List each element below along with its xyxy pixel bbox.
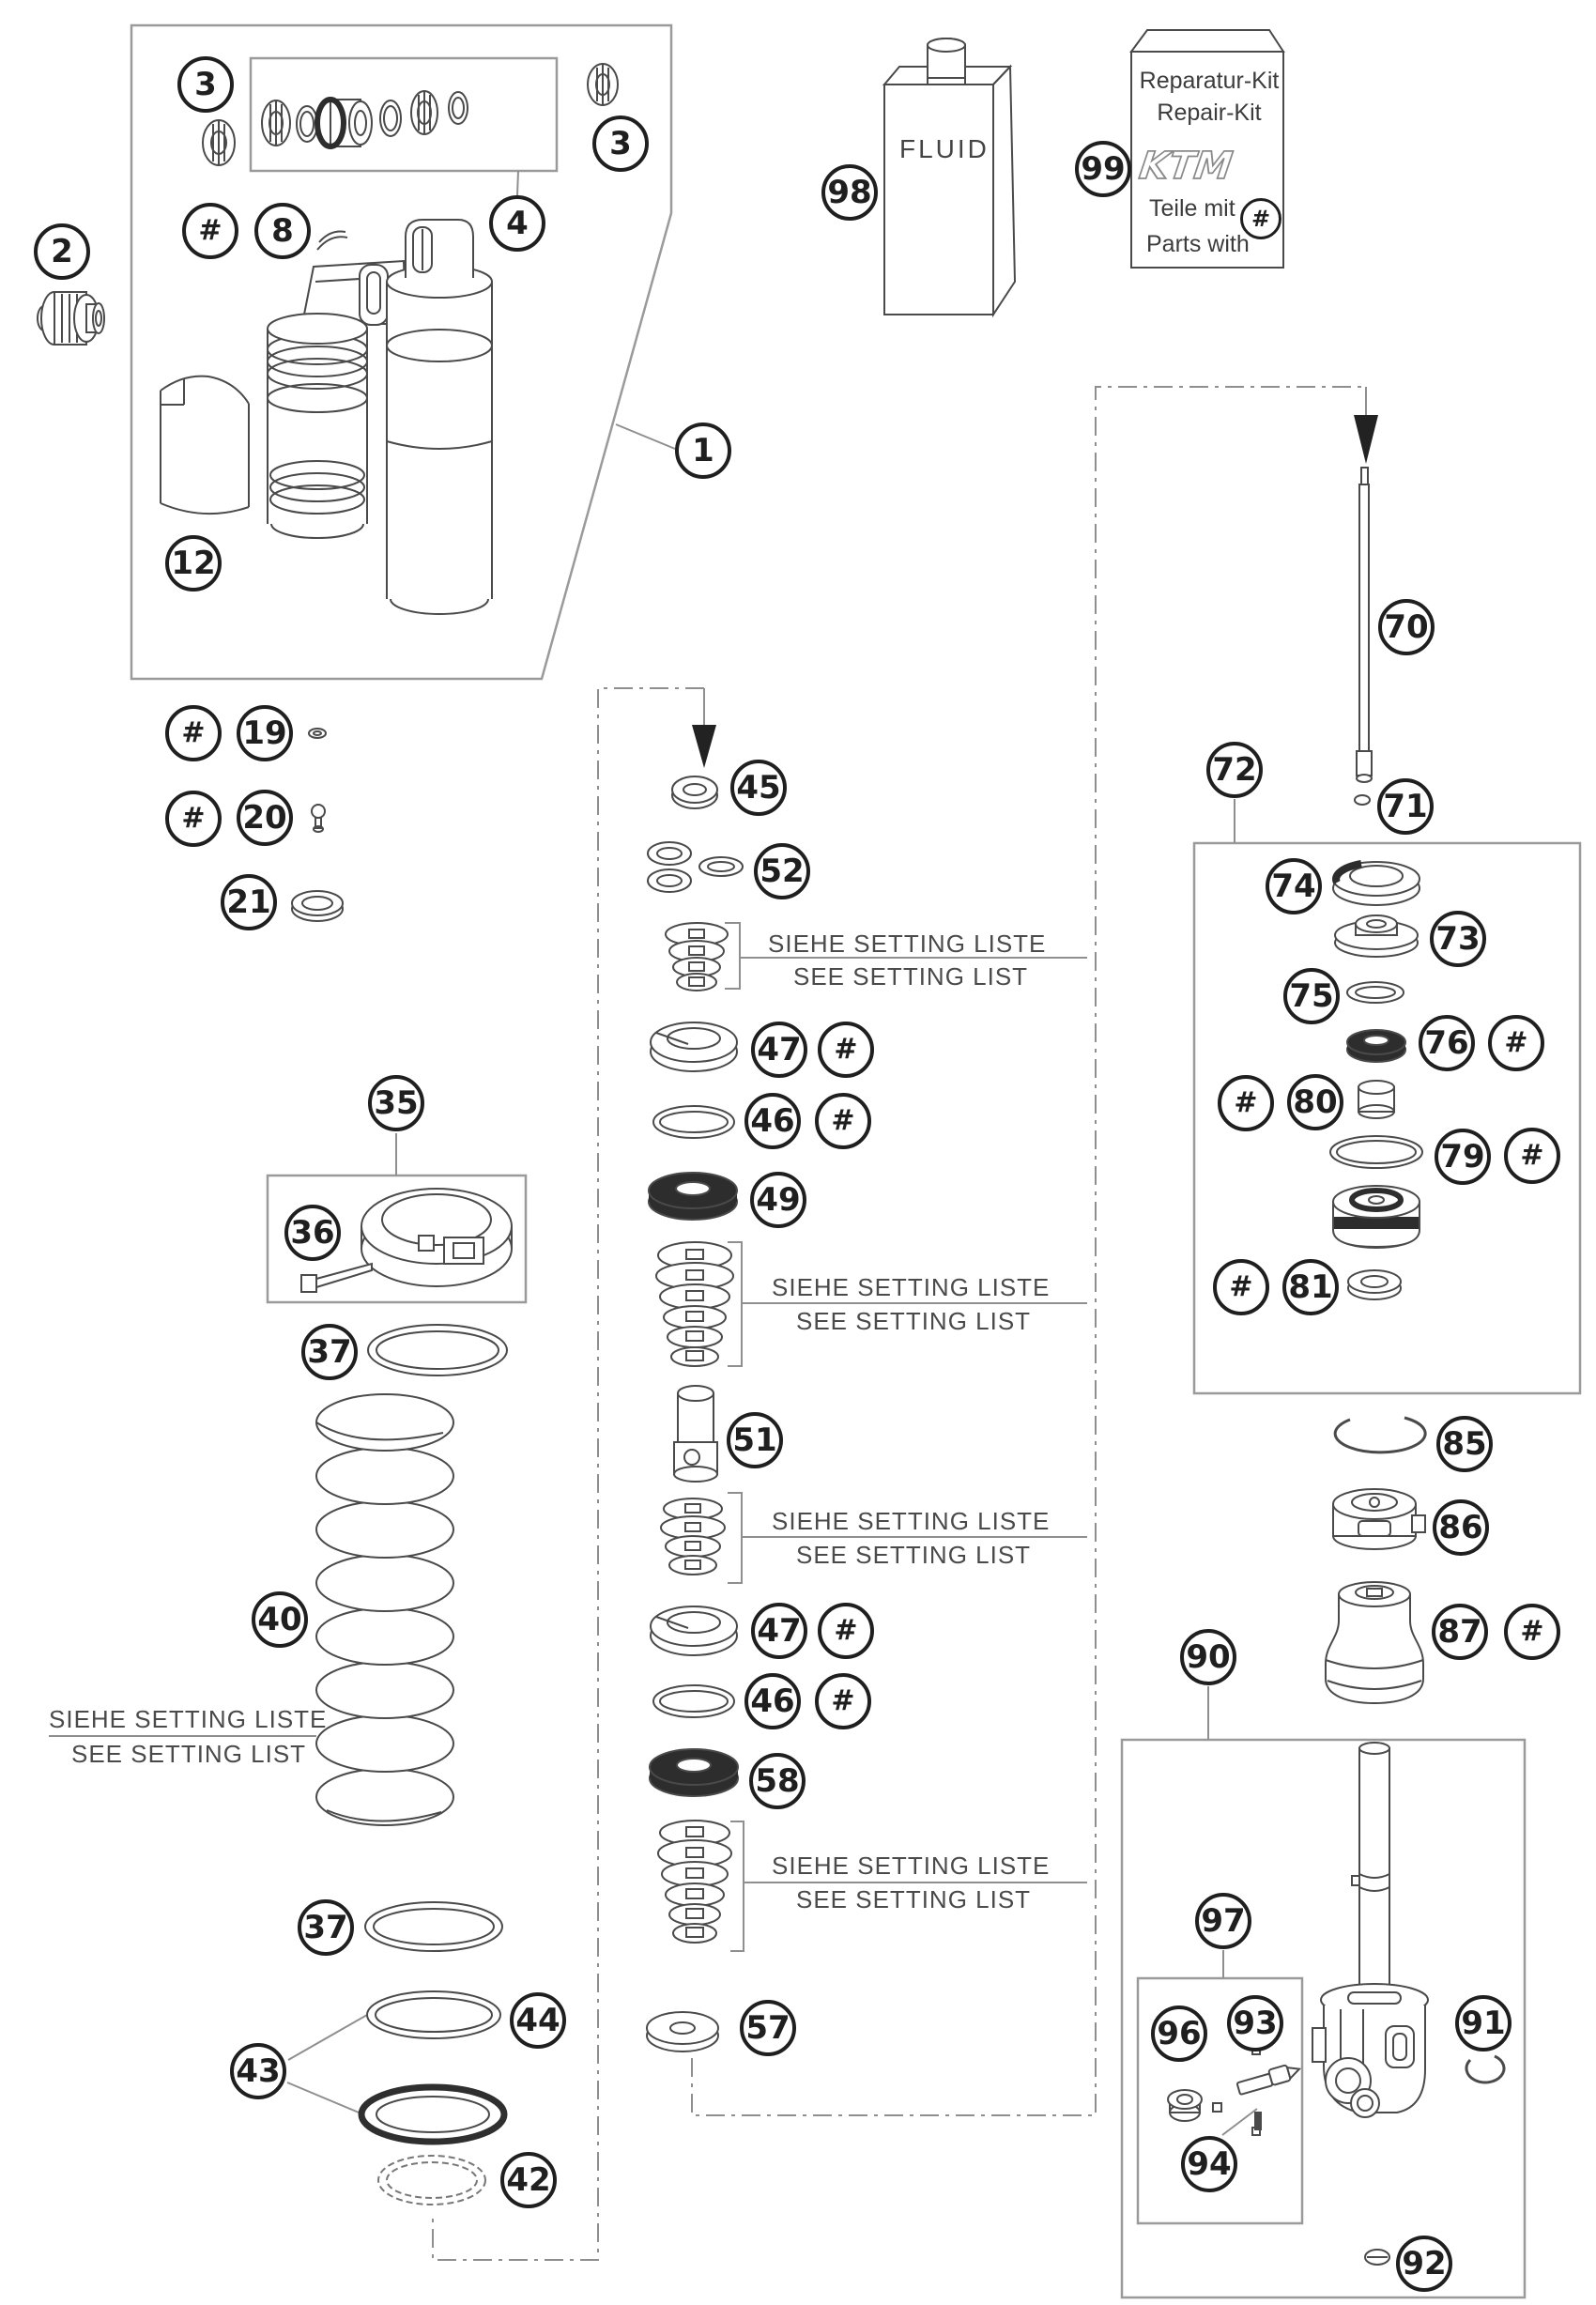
callout-37: 37 [298,1899,354,1956]
part-79-oring [1330,1136,1422,1168]
callout-57: 57 [740,2000,796,2056]
setting-note-0-line1: SIEHE SETTING LISTE [768,930,1046,959]
callout-86: 86 [1433,1499,1489,1556]
setting-note-1-line2: SEE SETTING LIST [796,1307,1031,1336]
callout-4: 4 [489,195,545,252]
part-81-washer [1348,1270,1401,1299]
flow-arrows [692,387,1378,768]
part-3-bushing-right [588,64,618,105]
part-80-bushing [1358,1081,1394,1118]
part-91-ring [1466,2056,1504,2082]
callout-hash: # [818,1603,874,1659]
callout-92: 92 [1396,2236,1452,2292]
callout-47: 47 [751,1022,807,1078]
setting-note-3-line2: SEE SETTING LIST [796,1885,1031,1914]
shim-stack-3 [661,1498,725,1575]
setting-note-3-line1: SIEHE SETTING LISTE [772,1852,1050,1881]
callout-80: 80 [1287,1074,1343,1130]
callout-79: 79 [1435,1129,1491,1185]
callout-36: 36 [284,1205,341,1261]
part-3-bushing-left [203,120,235,165]
part-45-locknut [672,776,717,808]
part-44-ring [367,1991,500,2038]
setting-note-2-line1: SIEHE SETTING LISTE [772,1507,1050,1536]
part-52-washers [648,842,743,892]
setting-note-4-line1: SIEHE SETTING LISTE [49,1705,327,1734]
part-58-piston [650,1749,738,1796]
callout-43: 43 [230,2043,286,2099]
callout-46: 46 [744,1093,801,1149]
callout-98: 98 [821,164,878,221]
repair-kit-title-de: Reparatur-Kit [1134,68,1284,95]
part-2-adjuster [38,292,104,345]
callout-hash: # [165,791,222,847]
callout-hash: # [818,1022,874,1078]
callout-hash: # [1504,1128,1560,1184]
part-46-ring-top [653,1106,734,1138]
part-57-washer [647,2012,718,2051]
down-arrow-icon [1354,415,1378,464]
callout-90: 90 [1180,1629,1236,1685]
callout-hash: # [1504,1604,1560,1660]
callout-35: 35 [368,1075,424,1131]
repair-kit-title-en: Repair-Kit [1134,100,1284,127]
callout-hash: # [1240,198,1281,239]
callout-58: 58 [749,1753,806,1809]
callout-46: 46 [744,1673,801,1729]
callout-hash: # [165,705,222,761]
fluid-bottle-label: FLUID [899,134,990,164]
setting-note-1-line1: SIEHE SETTING LISTE [772,1273,1050,1302]
callout-85: 85 [1436,1416,1493,1472]
callout-74: 74 [1266,858,1322,914]
callout-1: 1 [675,423,731,479]
part-37-ring-bottom [365,1902,502,1951]
part-43-seal-ring [361,2087,504,2142]
part-8-spring-clip [317,231,347,250]
callout-37: 37 [301,1324,358,1380]
callout-71: 71 [1377,778,1434,835]
repair-kit-note-en: Parts with [1146,231,1250,258]
part-seal-head-72 [1333,1186,1420,1248]
callout-94: 94 [1181,2136,1237,2192]
part-51-spacer [674,1386,717,1482]
part-42-oring [378,2156,485,2205]
part-12-heat-shield [161,376,249,515]
part-49-piston [649,1173,737,1220]
callout-hash: # [1488,1015,1544,1071]
callout-97: 97 [1195,1893,1251,1949]
callout-91: 91 [1455,1995,1512,2051]
fluid-bottle [884,38,1015,315]
kit-90-shaft-clevis [1312,1743,1428,2117]
shock-absorber-assembly [268,220,492,614]
repair-kit-note-de: Teile mit [1149,195,1235,223]
setting-note-2-line2: SEE SETTING LIST [796,1541,1031,1570]
part-71-stop [1355,795,1370,805]
callout-3: 3 [177,56,234,113]
callout-hash: # [1218,1075,1274,1131]
callout-49: 49 [750,1172,806,1228]
part-37-ring-top [368,1325,507,1375]
callout-87: 87 [1432,1604,1488,1660]
callout-93: 93 [1227,1995,1283,2051]
callout-hash: # [815,1093,871,1149]
callout-47: 47 [751,1603,807,1659]
part-86-seal-head [1333,1489,1425,1549]
down-arrow-icon [692,725,716,768]
box-kit-4 [251,58,557,171]
ktm-logo-text: KTM [1137,145,1235,188]
part-92-plug [1365,2250,1389,2265]
callout-52: 52 [754,843,810,899]
shim-stack-2 [656,1242,733,1366]
part-74-washer [1333,862,1420,905]
setting-note-rules [49,923,1087,1951]
part-75-ring [1347,982,1404,1003]
callout-73: 73 [1430,911,1486,967]
callout-96: 96 [1151,2005,1207,2062]
setting-note-4-line2: SEE SETTING LIST [71,1740,306,1769]
part-73-support [1335,915,1418,957]
callout-45: 45 [730,760,787,816]
callout-70: 70 [1378,599,1435,655]
exploded-view-drawing: KTM [0,0,1596,2305]
parts-diagram-page: KTM FLUID Reparatur-Kit Repair-Kit Teile… [0,0,1596,2305]
callout-51: 51 [727,1412,783,1468]
callout-76: 76 [1419,1015,1475,1071]
callout-42: 42 [500,2152,557,2208]
callout-75: 75 [1283,968,1340,1024]
callout-hash: # [815,1673,871,1729]
callout-99: 99 [1075,141,1131,197]
part-47-seat-top [651,1022,737,1071]
callout-44: 44 [510,1992,566,2049]
callout-21: 21 [221,874,277,930]
part-19-grub [309,729,326,738]
callout-12: 12 [165,535,222,592]
setting-note-0-line2: SEE SETTING LIST [793,962,1028,991]
callout-hash: # [182,203,238,259]
part-40-spring [316,1394,453,1825]
shim-stack-4 [658,1821,731,1943]
callout-hash: # [1213,1259,1269,1315]
callout-40: 40 [252,1591,308,1648]
callout-2: 2 [34,223,90,280]
part-85-snap-ring [1335,1418,1425,1452]
part-70-push-rod [1357,468,1372,782]
callout-81: 81 [1282,1259,1339,1315]
part-76-seal [1347,1030,1405,1062]
part-21-cap [292,891,343,921]
callout-72: 72 [1206,742,1263,798]
part-87-bump-stop [1326,1582,1423,1703]
callout-19: 19 [237,705,293,761]
kit-4-seals [262,91,468,146]
shim-stack-1 [666,923,728,991]
callout-20: 20 [237,790,293,846]
part-20-valve [312,805,325,832]
part-46-ring-bottom [653,1685,734,1717]
part-47-seat-bottom [651,1606,737,1655]
callout-3: 3 [592,115,649,172]
callout-8: 8 [254,203,311,259]
